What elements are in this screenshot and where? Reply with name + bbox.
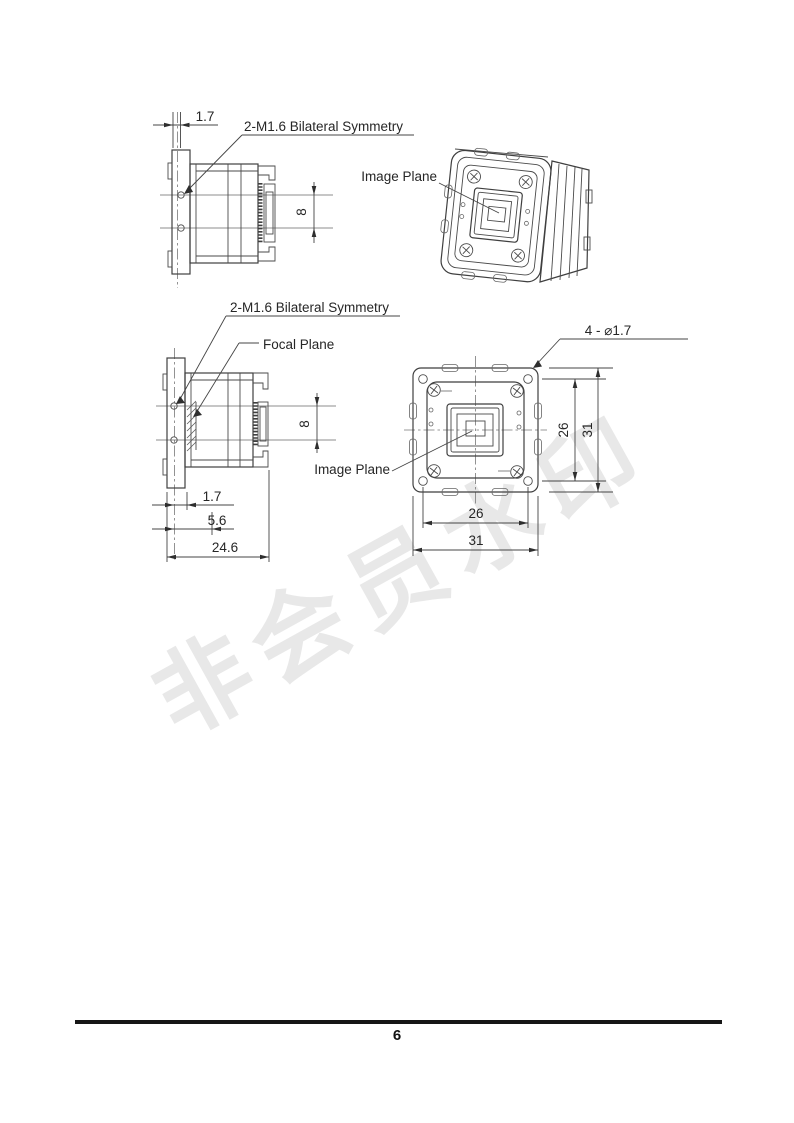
page-number: 6 [0,1027,794,1044]
dim-label-connector-8-mid: 8 [297,420,312,428]
dim-label-hole-spacing-h: 26 [468,506,483,521]
side-view-mid-drawing: 8 2-M1.6 Bilateral Symmetry Focal Plane … [152,300,400,562]
dim-label-body-width: 31 [468,533,483,548]
side-view-top-drawing: 1.7 8 2-M1.6 Bilateral Symmetry [153,109,414,288]
iso-corner-screws [459,169,533,262]
label-focal-plane: Focal Plane [263,337,334,352]
dim-label-flange-1-7-mid: 1.7 [203,489,222,504]
label-screw-holes-top: 2-M1.6 Bilateral Symmetry [244,119,403,134]
front-view-drawing: Image Plane 4 - ⌀1.7 26 31 [314,323,688,556]
dim-label-depth-24-6: 24.6 [212,540,238,555]
footer-rule [75,1020,722,1024]
label-mounting-holes: 4 - ⌀1.7 [585,323,631,338]
dim-label-connector-8-top: 8 [294,208,309,216]
dim-label-hole-spacing-v: 26 [556,422,571,437]
focal-plane-hatch [187,401,196,451]
label-screw-holes-mid: 2-M1.6 Bilateral Symmetry [230,300,389,315]
document-page: 非会员水印 [0,0,794,1123]
dimension-drawing-canvas: 1.7 8 2-M1.6 Bilateral Symmetry [0,0,794,1123]
dim-label-flange-1-7-top: 1.7 [196,109,215,124]
label-image-plane-iso-text: Image Plane [361,169,437,184]
dim-label-body-height: 31 [580,422,595,437]
iso-view-drawing: Image Plane [361,145,592,286]
label-image-plane-front: Image Plane [314,462,390,477]
dim-label-focal-5-6: 5.6 [208,513,227,528]
